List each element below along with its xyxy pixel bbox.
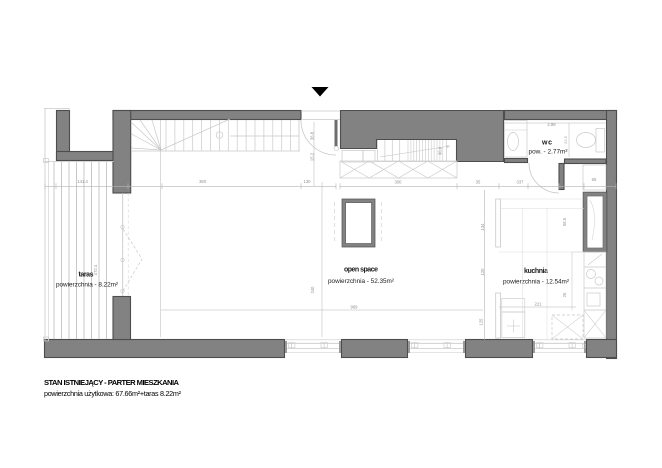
svg-text:powierzchnia - 8.22m²: powierzchnia - 8.22m² <box>56 282 118 289</box>
svg-text:powierzchnia - 52.35m²: powierzchnia - 52.35m² <box>328 278 394 285</box>
svg-text:wc: wc <box>541 140 552 147</box>
svg-text:powierzchnia - 12.54m²: powierzchnia - 12.54m² <box>503 279 569 286</box>
svg-text:15.2: 15.2 <box>310 152 315 161</box>
svg-text:360: 360 <box>199 179 207 184</box>
svg-text:65: 65 <box>592 177 597 182</box>
svg-text:powierzchnia użytkowa: 67.66m²: powierzchnia użytkowa: 67.66m²+taras 8.2… <box>44 389 182 398</box>
svg-text:969: 969 <box>351 305 359 310</box>
svg-text:26: 26 <box>562 292 567 297</box>
svg-text:125: 125 <box>479 318 484 326</box>
svg-text:open space: open space <box>344 266 378 273</box>
svg-text:taras: taras <box>79 272 94 279</box>
svg-text:35: 35 <box>476 179 481 184</box>
svg-text:30.8: 30.8 <box>438 146 443 155</box>
svg-text:36.8: 36.8 <box>310 131 315 140</box>
svg-text:pow. - 2.77m²: pow. - 2.77m² <box>529 149 568 156</box>
svg-text:STAN ISTNIEJĄCY - PARTER MIESZ: STAN ISTNIEJĄCY - PARTER MIESZKANIA <box>44 378 180 387</box>
svg-text:120: 120 <box>480 268 485 276</box>
svg-text:240: 240 <box>310 286 315 294</box>
svg-text:58.5: 58.5 <box>562 217 567 226</box>
svg-text:221: 221 <box>535 302 543 307</box>
svg-text:2.98: 2.98 <box>547 122 556 127</box>
svg-text:134: 134 <box>480 223 485 231</box>
svg-text:300: 300 <box>395 179 403 184</box>
svg-text:337: 337 <box>517 179 525 184</box>
svg-text:472.4: 472.4 <box>93 264 98 275</box>
svg-text:141.4: 141.4 <box>77 179 88 184</box>
svg-text:22.5: 22.5 <box>563 135 568 144</box>
svg-text:kuchnia: kuchnia <box>524 268 548 275</box>
svg-text:130: 130 <box>304 179 312 184</box>
